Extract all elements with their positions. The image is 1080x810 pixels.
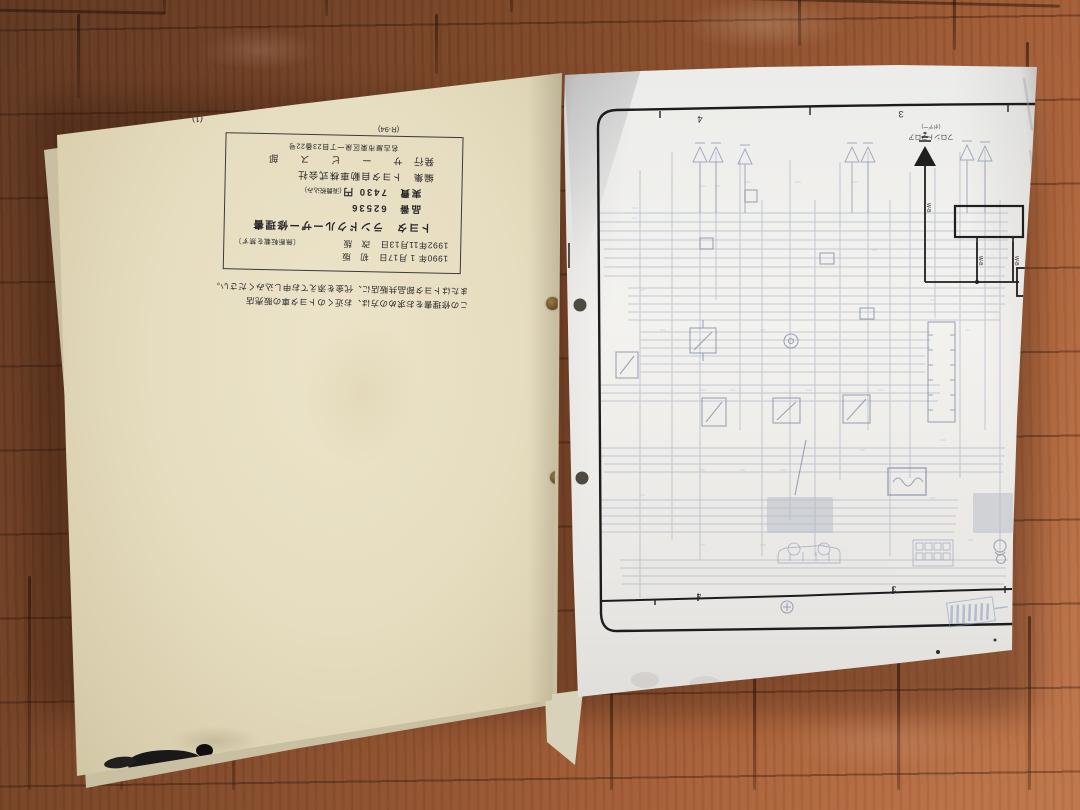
floor-scuff: [680, 0, 850, 50]
inspection-stamp: [947, 595, 1010, 627]
first-edition-label: 初 版: [342, 250, 369, 263]
floor-scuff: [200, 30, 320, 70]
frame-top-line: [598, 104, 1036, 128]
editor-row: 編集 トヨタ自動車株式会社: [236, 167, 434, 185]
grid-number-bottom: 4: [696, 591, 701, 600]
paper-stain: [300, 316, 420, 466]
order-note: この修理書をお求めの方は、お近くのトヨタ車の販売店 またはトヨタ部品共販店に、代…: [148, 277, 468, 311]
pin-grid: [913, 540, 953, 566]
manual-title: トヨタ ランドクルーザー修理書: [235, 216, 449, 235]
lamp-symbol: [784, 334, 798, 348]
price-note: (消費税込み): [305, 186, 342, 194]
colophon-box: 1990年 1 月17日 初 版 1992年11月13日 改 版 〔無断転載を禁…: [223, 132, 464, 274]
price-row: 実費 7430 円(消費税込み): [235, 183, 421, 201]
ground-triangle-bold: [914, 146, 936, 166]
grid-number-top: 4: [697, 114, 702, 124]
plank-seam: [510, 0, 513, 12]
ground-symbols: [693, 141, 992, 213]
plank-seam: [953, 0, 956, 50]
ecu-box: [928, 322, 955, 422]
ground-location-sublabel: (ボデー): [921, 123, 940, 131]
part-number-row: 品番 62536: [235, 199, 421, 217]
plank-seam: [77, 14, 80, 98]
page-stains: [631, 78, 1034, 694]
revised-edition-label: 改 版: [343, 238, 370, 251]
grid-number-bottom: 3: [891, 584, 896, 593]
copyright-note: 〔無断転載を禁ず〕: [234, 235, 300, 246]
left-page: この修理書をお求めの方は、お近くのトヨタ車の販売店 またはトヨタ部品共販店に、代…: [50, 66, 570, 782]
grid-number-top: 3: [898, 109, 903, 119]
diagram-frame: [598, 104, 1036, 631]
wire-code-label: W-B: [1013, 256, 1019, 266]
plank-seam: [163, 0, 166, 14]
ground-location-label: フロントフロア: [908, 133, 954, 141]
first-edition-date: 1990年 1 月17日: [379, 251, 449, 265]
plank-seam: [435, 14, 438, 74]
price-value: 実費 7430 円: [342, 185, 422, 198]
section-ref: (R-94): [378, 125, 399, 134]
right-page: フロントフロア (ボデー) W-B W-B W-B: [556, 58, 1046, 706]
photo-scene: この修理書をお求めの方は、お近くのトヨタ車の販売店 またはトヨタ部品共販店に、代…: [0, 0, 1080, 810]
wiring-diagram: フロントフロア (ボデー) W-B W-B W-B: [556, 58, 1046, 706]
colophon-block: この修理書をお求めの方は、お近くのトヨタ車の販売店 またはトヨタ部品共販店に、代…: [148, 109, 474, 312]
plank-seam: [325, 0, 328, 16]
wire-code-label: W-B: [977, 256, 983, 266]
publisher-row: 発行 サ ー ビ ス 部: [236, 151, 434, 169]
floor-scuff: [780, 710, 980, 770]
publisher-value: サ ー ビ ス 部: [263, 152, 403, 166]
publisher-label: 発行: [413, 155, 434, 166]
frame-inner-bottom-line: [601, 589, 1012, 601]
revised-edition-date: 1992年11月13日: [380, 239, 448, 253]
binding-holes-right: [569, 243, 589, 516]
wire-code-label: W-B: [925, 203, 931, 213]
